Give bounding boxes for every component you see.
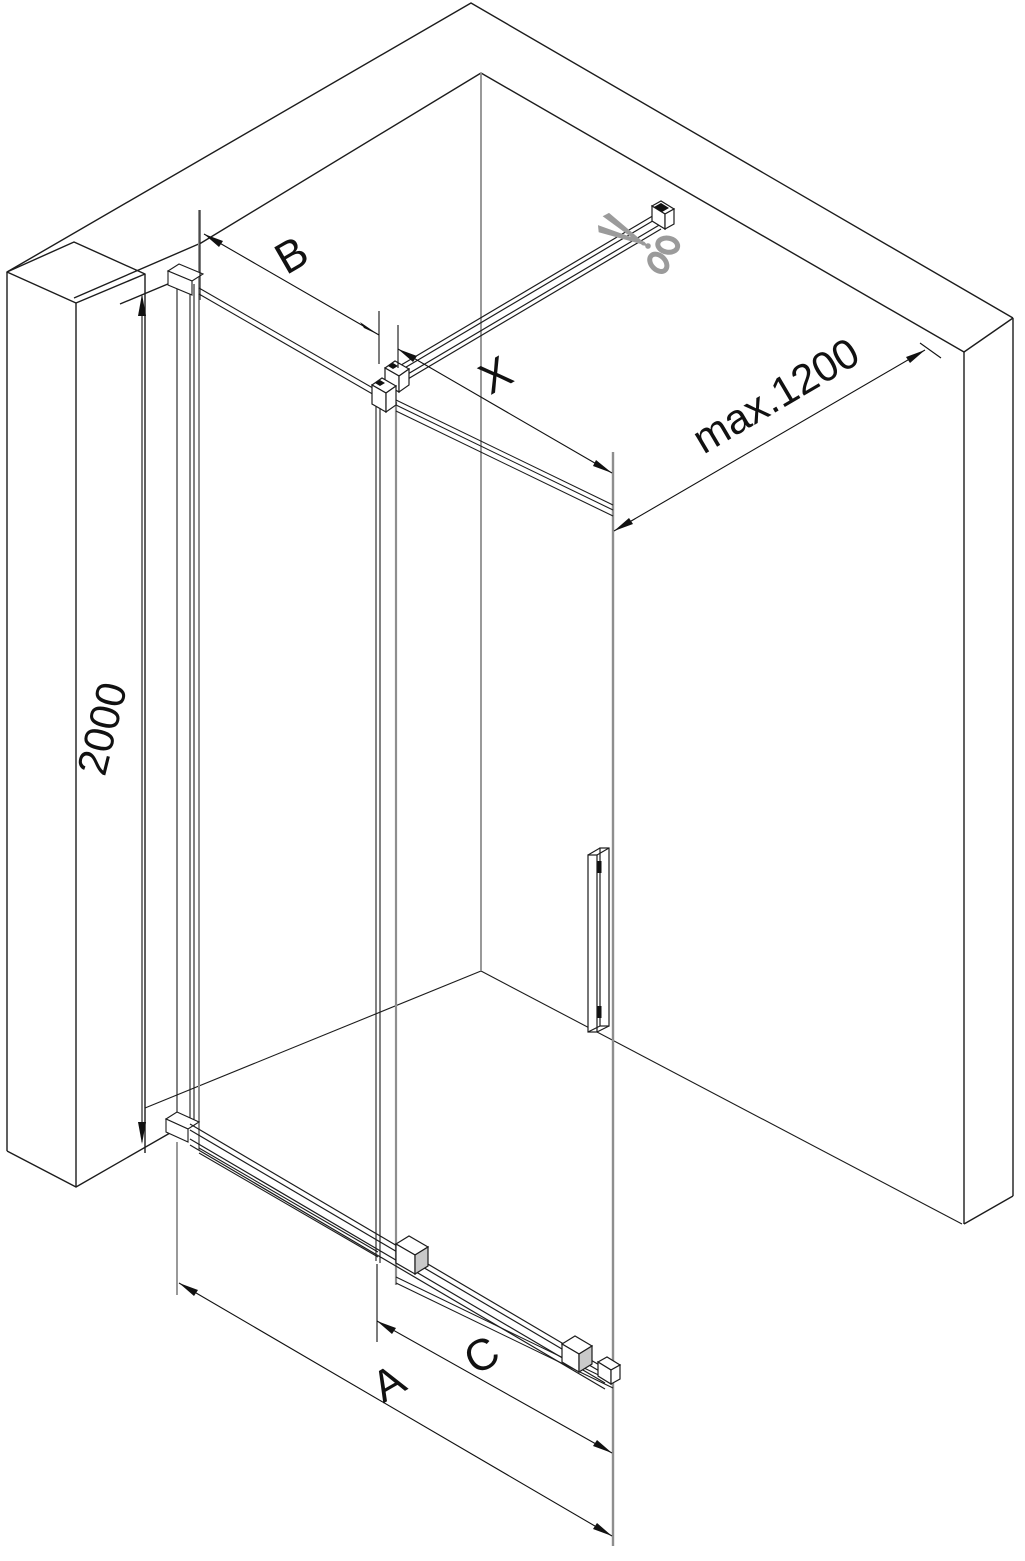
dimension-labels: 2000 B X max.1200 A C: [68, 227, 867, 1412]
label-panel-b: B: [267, 227, 317, 284]
bottom-rail-end-cap: [598, 1357, 620, 1384]
hanger-bracket: [372, 361, 409, 412]
floor-line: [145, 971, 962, 1224]
dimensions: [138, 210, 941, 1536]
label-height-2000: 2000: [68, 677, 136, 779]
right-wall: [964, 318, 1013, 1224]
dimension-total-a: [179, 1283, 612, 1536]
label-opening-c: C: [456, 1326, 508, 1384]
top-rail-end-cap: [652, 201, 674, 229]
wall-profile: [166, 264, 203, 1142]
label-total-a: A: [364, 1355, 414, 1412]
label-rail-max1200: max.1200: [684, 328, 867, 462]
sliding-door-panel: [396, 400, 613, 1388]
bottom-rail: [190, 1124, 620, 1389]
top-beam: [7, 3, 1013, 352]
glass-edges: [177, 73, 613, 1546]
shower-enclosure-diagram: 2000 B X max.1200 A C: [0, 0, 1025, 1561]
door-handle: [588, 848, 609, 1032]
walls: [7, 3, 1013, 1224]
isometric-installation-drawing: 2000 B X max.1200 A C: [0, 0, 1025, 1561]
